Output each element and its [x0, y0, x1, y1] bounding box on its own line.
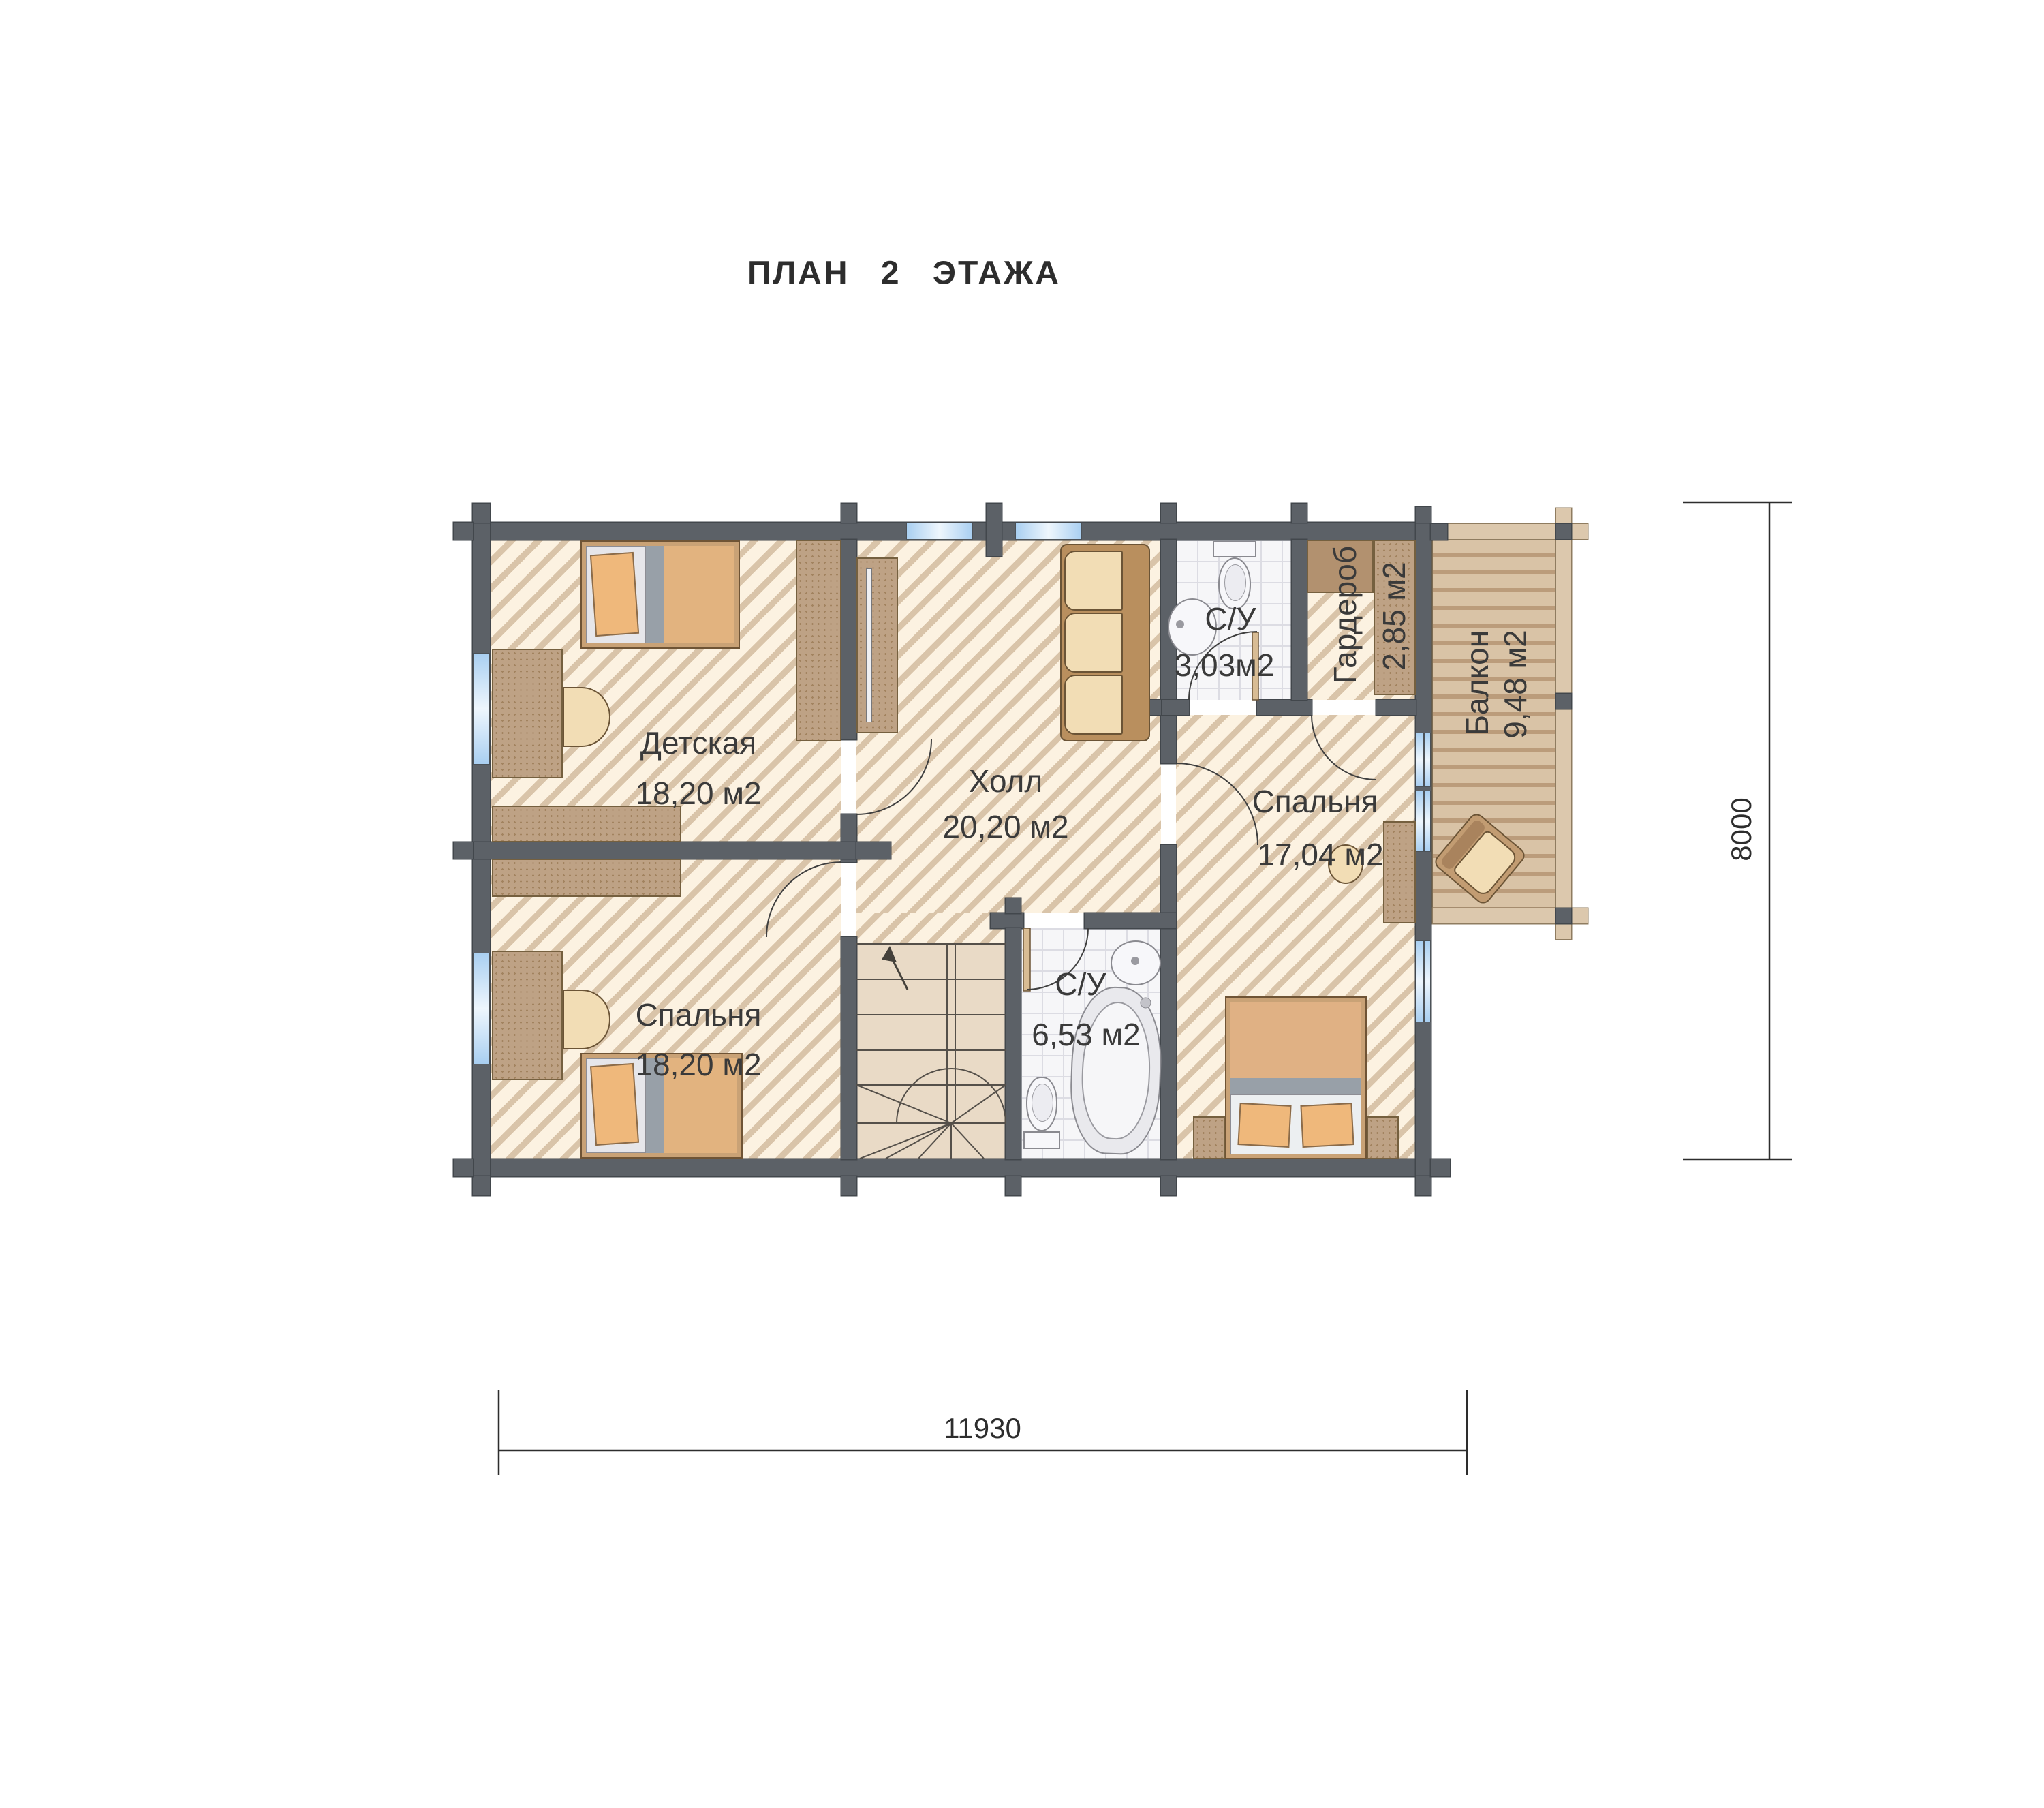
room-label-wardrobe-area: 2,85 м2 — [1376, 562, 1412, 671]
stairs-up-arrow — [882, 946, 908, 990]
room-label-bathroom-top-name: С/У — [1205, 600, 1256, 637]
room-label-balcony-area: 9,48 м2 — [1497, 630, 1534, 739]
door-leaf — [1023, 928, 1030, 991]
floor-plan-canvas: ПЛАН 2 ЭТАЖА Детская 18,20 м2 Спальня 18… — [0, 0, 2044, 1808]
dimension-width-label: 11930 — [944, 1412, 1021, 1445]
room-label-nursery-name: Детская — [640, 724, 756, 761]
room-label-bathroom-bottom-name: С/У — [1055, 966, 1106, 1002]
room-label-nursery-area: 18,20 м2 — [635, 775, 761, 812]
room-label-bedroom-left-name: Спальня — [636, 996, 762, 1033]
room-label-balcony-name: Балкон — [1459, 630, 1496, 735]
dimension-height-label: 8000 — [1725, 797, 1758, 861]
room-label-bedroom-left-area: 18,20 м2 — [635, 1046, 761, 1083]
page-title: ПЛАН 2 ЭТАЖА — [747, 255, 1061, 292]
room-label-bathroom-top-area: 3,03м2 — [1175, 647, 1275, 684]
dimension-lines — [499, 502, 1792, 1475]
room-label-hall-area: 20,20 м2 — [942, 808, 1068, 845]
room-label-wardrobe-name: Гардероб — [1327, 546, 1363, 684]
room-label-hall-name: Холл — [969, 763, 1042, 799]
room-label-bedroom-right-area: 17,04 м2 — [1257, 836, 1383, 873]
room-label-bathroom-bottom-area: 6,53 м2 — [1032, 1016, 1141, 1053]
room-label-bedroom-right-name: Спальня — [1252, 783, 1378, 820]
staircase — [856, 944, 1006, 1159]
